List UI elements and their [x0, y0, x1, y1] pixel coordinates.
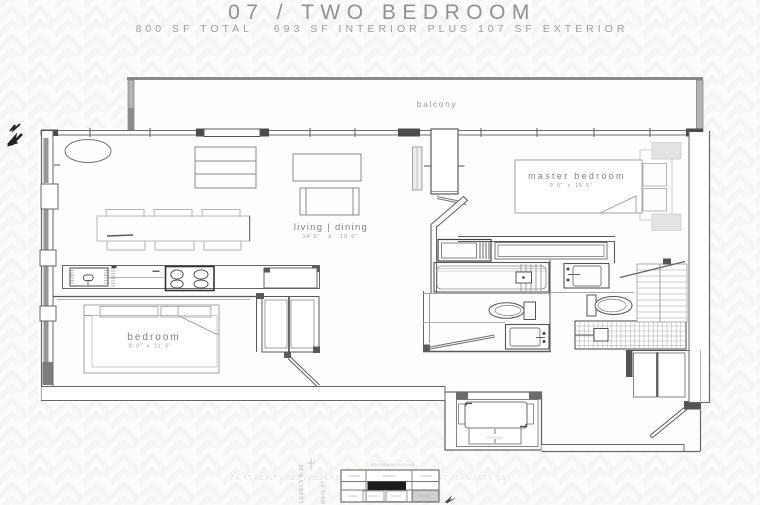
svg-text:07 / TWO BEDROOM: 07 / TWO BEDROOM: [228, 1, 536, 24]
svg-text:bedroom: bedroom: [127, 332, 180, 343]
svg-text:8' 0" x 11' 0": 8' 0" x 11' 0": [129, 344, 171, 350]
svg-text:balcony: balcony: [417, 99, 458, 109]
svg-text:storage: storage: [487, 435, 504, 440]
svg-text:LEVELS 9-33: LEVELS 9-33: [299, 464, 305, 503]
svg-text:MAIN ST: MAIN ST: [321, 480, 327, 504]
svg-text:14' 6" x 10' 6": 14' 6" x 10' 6": [303, 234, 358, 240]
svg-text:BROADWAY AVENUE: BROADWAY AVENUE: [371, 463, 415, 467]
svg-text:living | dining: living | dining: [294, 222, 368, 233]
svg-text:800 SF TOTAL 693 SF INTERIOR: 800 SF TOTAL 693 SF INTERIOR PLUS 107 SF…: [136, 23, 629, 35]
svg-text:master bedroom: master bedroom: [528, 171, 626, 181]
svg-text:9' 0" x 15' 5": 9' 0" x 15' 5": [550, 183, 593, 189]
